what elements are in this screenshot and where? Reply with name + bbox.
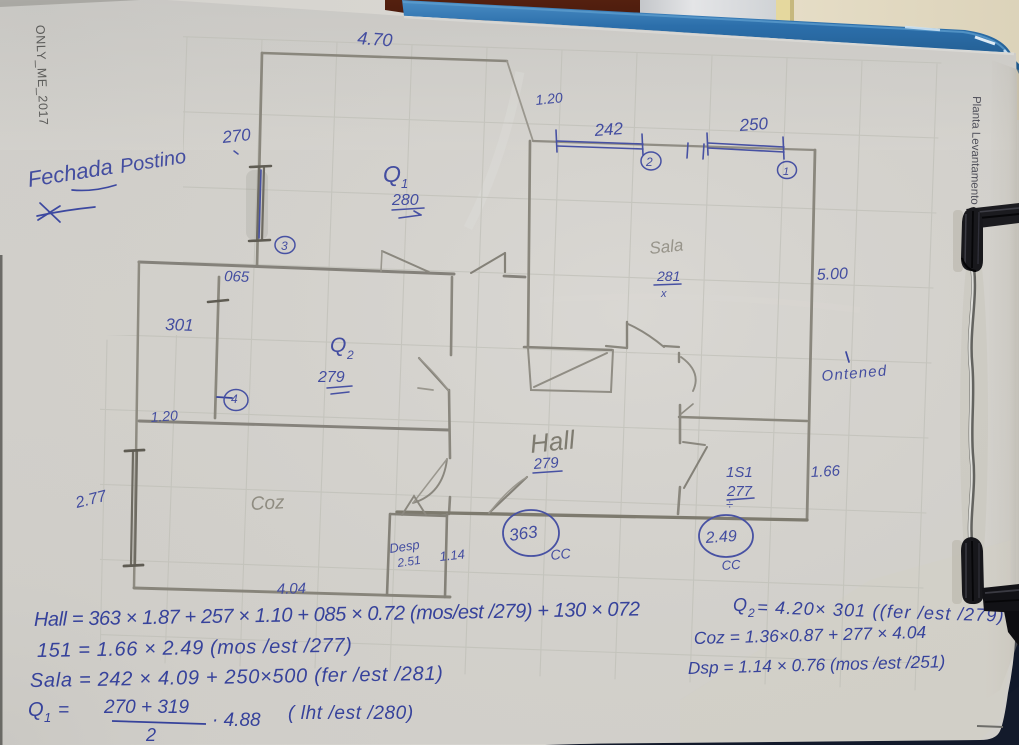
svg-text:250: 250 (738, 114, 769, 135)
svg-text:( lht /est /280): ( lht /est /280) (288, 703, 414, 724)
svg-text:3: 3 (281, 239, 288, 253)
svg-text:270 + 319: 270 + 319 (103, 697, 189, 718)
svg-text:1.66: 1.66 (810, 462, 841, 481)
svg-text:4.70: 4.70 (357, 28, 393, 50)
svg-text:301: 301 (165, 315, 194, 335)
svg-text:Sala: Sala (648, 236, 684, 258)
svg-text:x: x (660, 288, 667, 300)
svg-text:1: 1 (44, 710, 51, 725)
svg-text:Q: Q (383, 161, 401, 187)
svg-text:5.00: 5.00 (816, 265, 848, 284)
svg-text:Q: Q (733, 595, 747, 615)
svg-text:=: = (58, 700, 69, 721)
svg-text:1.14: 1.14 (439, 546, 466, 564)
svg-text:1: 1 (401, 176, 408, 191)
svg-text:Hall: Hall (528, 424, 577, 459)
svg-text:Q: Q (28, 699, 44, 721)
svg-text:Q: Q (330, 334, 346, 357)
svg-text:2: 2 (645, 155, 653, 169)
svg-text:2: 2 (145, 725, 156, 745)
svg-text:· 4.88: · 4.88 (212, 710, 261, 731)
svg-text:280: 280 (391, 192, 419, 209)
svg-text:281: 281 (656, 268, 680, 284)
svg-text:4: 4 (231, 392, 238, 406)
svg-text:CC: CC (721, 557, 741, 573)
svg-text:4.04: 4.04 (277, 580, 307, 598)
svg-text:242: 242 (593, 119, 624, 140)
svg-text:065: 065 (224, 268, 250, 286)
svg-text:2: 2 (346, 348, 354, 362)
svg-text:1.20: 1.20 (535, 89, 564, 108)
svg-text:2: 2 (747, 606, 755, 620)
svg-text:363: 363 (508, 522, 539, 545)
svg-text:1: 1 (783, 166, 789, 178)
svg-text:Coz: Coz (250, 492, 285, 515)
svg-text:1.20: 1.20 (150, 407, 179, 425)
svg-text:CC: CC (550, 545, 573, 563)
svg-text:270: 270 (220, 125, 252, 147)
svg-text:1S1: 1S1 (726, 464, 753, 481)
svg-text:Planta Levantamento: Planta Levantamento (968, 96, 982, 205)
svg-text:2.49: 2.49 (704, 528, 737, 547)
svg-text:279: 279 (317, 369, 345, 386)
